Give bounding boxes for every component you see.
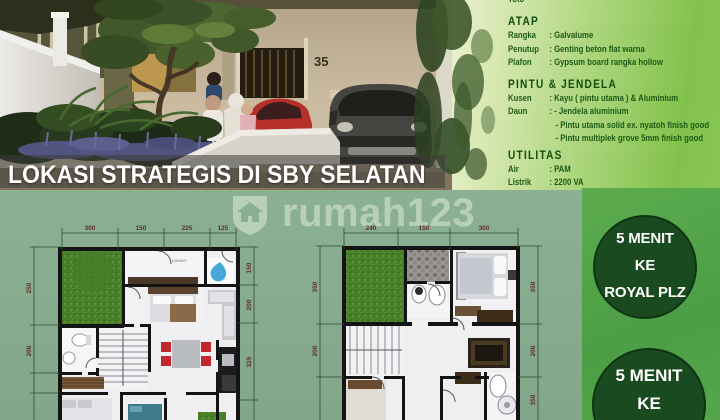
svg-text:350: 350: [530, 281, 537, 292]
svg-text:225: 225: [182, 225, 193, 232]
svg-text:200: 200: [312, 345, 319, 356]
svg-text:125: 125: [218, 225, 229, 232]
svg-text:200: 200: [530, 345, 537, 356]
svg-text:350: 350: [312, 281, 319, 292]
svg-text:325: 325: [246, 356, 253, 367]
svg-text:240: 240: [366, 225, 377, 232]
svg-text:200: 200: [26, 345, 33, 356]
svg-text:350: 350: [530, 394, 537, 405]
svg-text:250: 250: [26, 282, 33, 293]
svg-text:200: 200: [246, 299, 253, 310]
svg-text:KAMAR: KAMAR: [172, 258, 186, 263]
svg-text:300: 300: [85, 225, 96, 232]
svg-text:35: 35: [314, 54, 328, 69]
svg-text:150: 150: [136, 225, 147, 232]
svg-text:150: 150: [246, 262, 253, 273]
svg-text:150: 150: [419, 225, 430, 232]
svg-text:300: 300: [479, 225, 490, 232]
